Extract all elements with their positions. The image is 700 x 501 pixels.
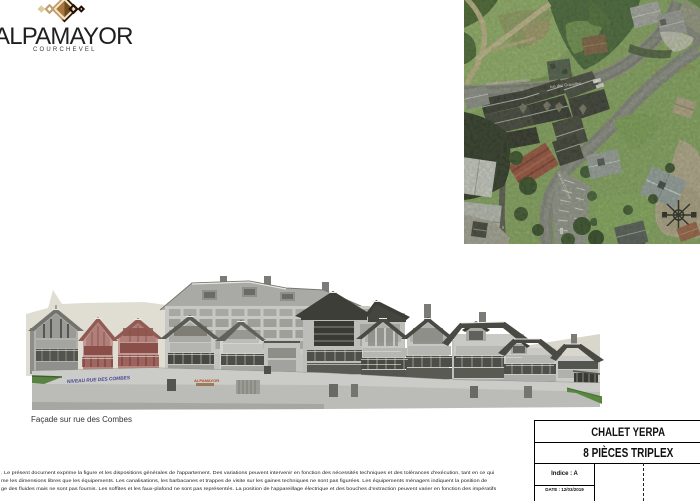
svg-text:ALPAMAYOR: ALPAMAYOR	[194, 378, 219, 383]
